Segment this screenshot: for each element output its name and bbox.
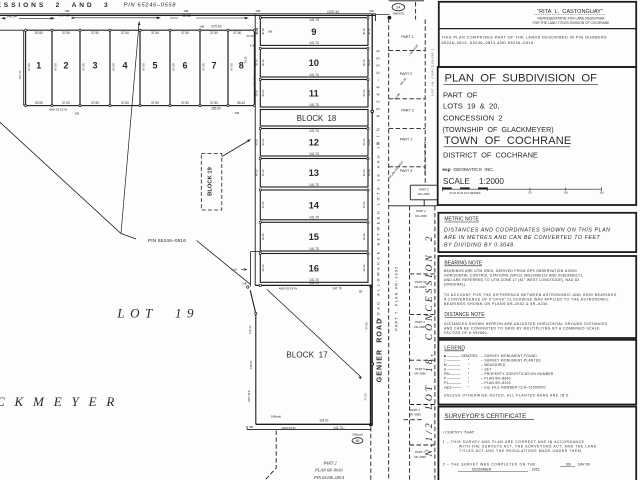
svg-text:BLOCK 19: BLOCK 19 [208, 166, 214, 195]
svg-text:N89°25′15″W: N89°25′15″W [49, 107, 67, 111]
svg-text:37.50: 37.50 [210, 101, 218, 105]
svg-text:″: ″ [468, 381, 470, 385]
svg-text:GENIER ROAD: GENIER ROAD [376, 318, 383, 383]
svg-text:CONCESSION 2: CONCESSION 2 [443, 113, 503, 122]
svg-text:SIB: SIB [249, 425, 254, 429]
svg-text:DAY OF: DAY OF [578, 462, 590, 466]
svg-text:BLOCK 17: BLOCK 17 [286, 351, 328, 360]
svg-text:PART 1: PART 1 [415, 450, 425, 454]
svg-text:9th: 9th [566, 462, 571, 466]
svg-text:PLAN 6R–8643: PLAN 6R–8643 [314, 468, 343, 473]
svg-text:HORIZONTAL CONTROL STATIONS (S: HORIZONTAL CONTROL STATIONS (SPCs) 00819… [444, 274, 584, 278]
svg-text:118.61: 118.61 [319, 418, 329, 422]
svg-text:40.20: 40.20 [367, 169, 371, 176]
svg-text:285.90: 285.90 [211, 107, 221, 111]
svg-text:– PLAN 6R–8643: – PLAN 6R–8643 [481, 377, 511, 381]
svg-text:138.01: 138.01 [249, 360, 253, 370]
svg-text:97.90: 97.90 [141, 63, 145, 71]
svg-text:9: 9 [311, 26, 316, 37]
svg-text:TO ACCOUNT FOR THE DIFFERENCE: TO ACCOUNT FOR THE DIFFERENCE BETWEEN AS… [444, 293, 618, 297]
svg-text:30.50: 30.50 [35, 31, 43, 35]
svg-text:97.90: 97.90 [81, 63, 85, 71]
svg-text:141.70: 141.70 [309, 183, 319, 187]
svg-text:141.70: 141.70 [309, 18, 319, 22]
svg-text:37.50: 37.50 [91, 31, 99, 35]
svg-text:37.50: 37.50 [62, 101, 70, 105]
svg-text:PART 5: PART 5 [415, 367, 425, 371]
svg-text:141.70: 141.70 [309, 73, 319, 77]
svg-text:DENOTES: DENOTES [462, 354, 479, 358]
svg-text:6R–2995: 6R–2995 [414, 325, 426, 329]
svg-text:77.26: 77.26 [364, 393, 368, 401]
svg-text:15: 15 [309, 231, 319, 242]
svg-text:40.20: 40.20 [261, 89, 265, 96]
svg-text:DISTANCES SHOWN HEREON ARE ADJ: DISTANCES SHOWN HEREON ARE ADJUSTED HORI… [444, 322, 608, 326]
svg-text:35.08: 35.08 [255, 27, 259, 34]
svg-text:PART 1, PLAN 6R–2995: PART 1, PLAN 6R–2995 [423, 141, 427, 174]
svg-text:97.90: 97.90 [53, 63, 57, 71]
svg-text:PART 3: PART 3 [400, 169, 412, 173]
svg-text:8: 8 [239, 61, 244, 71]
svg-text:■ ————: ■ ———— [444, 354, 461, 358]
svg-text:6R–3995: 6R–3995 [414, 455, 426, 459]
svg-text:1 – THIS SURVEY AND: 1 – THIS SURVEY AND PLAN ARE CORRECT AND… [443, 440, 585, 444]
svg-text:N07°24′E: N07°24′E [247, 390, 251, 401]
svg-text:LOTS 19 & 20,: LOTS 19 & 20, [443, 102, 500, 111]
svg-text:″: ″ [468, 377, 470, 381]
svg-text:– PLAN 6R–8320: – PLAN 6R–8320 [481, 381, 511, 385]
svg-text:40.20: 40.20 [362, 138, 366, 145]
svg-text:40.20: 40.20 [362, 233, 366, 240]
svg-text:4.80: 4.80 [250, 44, 256, 48]
svg-text:40.20: 40.20 [362, 28, 366, 35]
svg-text:SIB: SIB [242, 281, 246, 285]
svg-text:BEARINGS ARE UTM GRID, DERIVED: BEARINGS ARE UTM GRID, DERIVED FROM GPS … [444, 269, 577, 273]
svg-text:37.50: 37.50 [181, 101, 189, 105]
svg-text:7: 7 [211, 61, 216, 71]
svg-text:2: 2 [63, 61, 68, 71]
svg-text:4: 4 [122, 61, 127, 71]
svg-text:97.90: 97.90 [27, 63, 31, 71]
svg-text:PART 2: PART 2 [400, 72, 412, 76]
svg-text:37.50: 37.50 [151, 101, 159, 105]
svg-text:DISTANCE NOTE: DISTANCE NOTE [444, 312, 485, 318]
svg-text:148.04: 148.04 [6, 14, 16, 18]
svg-text:50 40 30 20 10 0 METRES: 50 40 30 20 10 0 METRES [450, 191, 481, 195]
svg-text:–N89°23′W: –N89°23′W [280, 426, 295, 430]
svg-text:PART OF: PART OF [443, 91, 478, 100]
svg-text:L O T 1 9: L O T 1 9 [116, 306, 194, 321]
svg-text:6R–82: 6R–82 [399, 76, 408, 85]
svg-text:P1————: P1———— [444, 381, 462, 385]
svg-text:37.50: 37.50 [91, 101, 99, 105]
svg-text:– MEASURED: – MEASURED [481, 363, 506, 367]
svg-text:39.30: 39.30 [367, 89, 371, 96]
svg-text:37.50: 37.50 [210, 31, 218, 35]
svg-text:PIN ———: PIN ——— [444, 372, 461, 376]
svg-text:″: ″ [468, 363, 470, 367]
svg-text:BEARING NOTE: BEARING NOTE [444, 260, 482, 266]
svg-text:40.20: 40.20 [362, 264, 366, 271]
svg-text:176.33: 176.33 [248, 325, 252, 335]
svg-text:PART 1: PART 1 [401, 35, 413, 39]
svg-text:40.20: 40.20 [362, 89, 366, 96]
svg-text:ESSIONS 2 AND 3: ESSIONS 2 AND 3 [0, 2, 111, 9]
svg-text:3: 3 [92, 61, 97, 71]
svg-text:– SET: – SET [481, 368, 492, 372]
svg-text:56.42: 56.42 [237, 101, 245, 105]
svg-text:– PROPERTY IDENTIFICATION N: – PROPERTY IDENTIFICATION NUMBER [481, 372, 554, 376]
svg-text:141.70: 141.70 [309, 247, 319, 251]
svg-text:40.20: 40.20 [254, 169, 258, 176]
svg-text:N89°25′15″W: N89°25′15″W [279, 287, 297, 291]
svg-text:REPRESENTATIVE FOR LAND REG: REPRESENTATIVE FOR LAND REGISTRAR [538, 17, 606, 21]
svg-text:SURVEYOR’S CERTIFICATE: SURVEYOR’S CERTIFICATE [444, 413, 526, 420]
svg-text:SIB: SIB [235, 111, 240, 115]
svg-text:″: ″ [468, 386, 470, 390]
svg-text:P ————: P ———— [444, 377, 461, 381]
svg-text:SCALE 1:2000: SCALE 1:2000 [443, 177, 504, 186]
svg-text:exp1———: exp1——— [444, 386, 462, 390]
svg-text:47.08: 47.08 [364, 322, 368, 330]
svg-text:, 2015.: , 2015. [530, 468, 540, 472]
svg-text:″: ″ [468, 372, 470, 376]
svg-text:PART 4: PART 4 [415, 320, 425, 324]
svg-text:39.30: 39.30 [254, 59, 258, 66]
svg-text:PART 3: PART 3 [415, 280, 425, 284]
svg-text:SIB: SIB [369, 9, 374, 13]
svg-text:PLAN OF SUBDIVISION OF: PLAN OF SUBDIVISION OF [445, 73, 598, 85]
svg-text:LEGEND: LEGEND [444, 345, 465, 351]
svg-text:39.30: 39.30 [254, 89, 258, 96]
svg-text:318.60: 318.60 [252, 77, 256, 86]
svg-text:30.40: 30.40 [247, 34, 254, 38]
svg-text:C K M E Y E R: C K M E Y E R [0, 394, 118, 409]
svg-text:SIB: SIB [65, 9, 70, 13]
svg-text:FACTOR OF 0.999560.: FACTOR OF 0.999560. [444, 331, 488, 335]
svg-text:107.27: 107.27 [18, 70, 22, 80]
svg-text:N.1/2 LOT 18, CONCESSION 2: N.1/2 LOT 18, CONCESSION 2 [424, 234, 435, 458]
svg-text:2 – THE SURVEY WAS C: 2 – THE SURVEY WAS COMPLETED ON THE [443, 462, 536, 466]
svg-text:TOWN OF COCHRANE: TOWN OF COCHRANE [444, 135, 571, 147]
svg-text:– exp FILE NUMBER CCH–0150: – exp FILE NUMBER CCH–01505000 [481, 386, 546, 390]
svg-text:24: 24 [396, 6, 400, 10]
svg-text:6R–3995: 6R–3995 [409, 413, 421, 417]
svg-text:METRIC NOTE: METRIC NOTE [444, 217, 479, 223]
svg-text:BLOCK 18: BLOCK 18 [297, 114, 336, 123]
svg-text:SIB(wit): SIB(wit) [271, 414, 282, 418]
svg-text:92.32: 92.32 [182, 14, 190, 18]
svg-text:(ORIGINAL).: (ORIGINAL). [444, 283, 467, 287]
svg-text:40.20: 40.20 [261, 28, 265, 35]
svg-text:FOR THE LAND TITLES DIVISI: FOR THE LAND TITLES DIVISION OF COCHRANE [533, 21, 611, 25]
svg-text:97.90: 97.90 [111, 63, 115, 71]
svg-text:141.70: 141.70 [309, 281, 319, 285]
svg-text:TITLES ACT AND THE REGULAT: TITLES ACT AND THE REGULATIONS MADE UNDE… [459, 449, 583, 453]
svg-text:SIB: SIB [200, 24, 205, 28]
svg-text:□ ————: □ ———— [444, 359, 461, 363]
svg-text:6.00: 6.00 [231, 268, 237, 272]
svg-text:30.10: 30.10 [367, 28, 371, 35]
svg-text:AND CAN BE CONVERTED TO GRID B: AND CAN BE CONVERTED TO GRID BY MULTIPLY… [444, 326, 600, 330]
svg-text:675.62: 675.62 [211, 24, 221, 28]
svg-text:ROAD ALLOWANCE BETWEEN LOTS 18: ROAD ALLOWANCE BETWEEN LOTS 18 AND 19 [376, 139, 380, 320]
svg-text:PIN 65246–0558: PIN 65246–0558 [124, 2, 177, 8]
svg-text:SIB: SIB [184, 9, 189, 13]
svg-text:97.90: 97.90 [229, 63, 233, 71]
svg-text:BEARINGS SHOWN ON PLANS 6R–255: BEARINGS SHOWN ON PLANS 6R–2552 & 6R–823… [444, 302, 549, 306]
svg-text:141.70–: 141.70– [333, 426, 345, 430]
svg-text:36.30: 36.30 [244, 56, 248, 63]
svg-text:141.70: 141.70 [309, 129, 319, 133]
svg-text:30.50: 30.50 [35, 101, 43, 105]
svg-text:exp GEOMATICS INC.: exp GEOMATICS INC. [442, 167, 494, 173]
svg-text:13: 13 [309, 167, 319, 178]
svg-text:THIS PLAN COMPRISES PART O: THIS PLAN COMPRISES PART OF THE LANDS DE… [442, 36, 608, 40]
svg-text:DECEMBER: DECEMBER [472, 468, 492, 472]
svg-text:PLAN: PLAN [393, 92, 401, 100]
svg-text:12: 12 [309, 137, 319, 148]
svg-text:1037.44: 1037.44 [327, 10, 339, 14]
svg-text:BY DIVIDING BY 0.3048.: BY DIVIDING BY 0.3048. [444, 242, 516, 248]
svg-text:6R–2995: 6R–2995 [414, 372, 426, 376]
svg-text:66: 66 [356, 439, 360, 443]
svg-text:37.50: 37.50 [233, 31, 241, 35]
svg-text:97.90: 97.90 [201, 63, 205, 71]
svg-text:37.50: 37.50 [181, 31, 189, 35]
svg-text:39.30: 39.30 [367, 59, 371, 66]
svg-text:14: 14 [309, 199, 320, 210]
svg-text:SIB: SIB [268, 30, 273, 34]
svg-text:40.20: 40.20 [261, 59, 265, 66]
svg-text:PART 7, PLAN 6R–3995: PART 7, PLAN 6R–3995 [394, 265, 398, 330]
svg-text:SIB(WIT): SIB(WIT) [393, 11, 405, 15]
svg-text:PART 3: PART 3 [410, 408, 420, 412]
svg-text:UNLESS OTHERWISE NOTED, ALL: UNLESS OTHERWISE NOTED, ALL PLANTED BARS… [444, 394, 570, 398]
svg-text:40.20: 40.20 [362, 59, 366, 66]
svg-text:PART 2: PART 2 [419, 188, 429, 192]
svg-text:SIB: SIB [256, 9, 261, 13]
svg-text:37.50: 37.50 [121, 101, 129, 105]
svg-text:– SURVEY MONUMENT FOUND: – SURVEY MONUMENT FOUND [481, 354, 537, 358]
svg-text:40.20: 40.20 [261, 169, 265, 176]
svg-text:6R–2995: 6R–2995 [415, 214, 427, 218]
svg-text:A CONVERGENCE OF 0°04′00″ CLOC: A CONVERGENCE OF 0°04′00″ CLOCKWISE WAS … [444, 297, 609, 301]
svg-text:37.50: 37.50 [62, 31, 70, 35]
svg-text:10: 10 [309, 57, 319, 68]
svg-text:16: 16 [309, 262, 319, 273]
svg-text:147.70: 147.70 [332, 287, 342, 291]
svg-text:AND ARE REFERRED TO UTM ZONE 1: AND ARE REFERRED TO UTM ZONE 17 (81° WES… [444, 278, 579, 282]
svg-text:5: 5 [152, 61, 157, 71]
svg-text:PIN 65246–0816: PIN 65246–0816 [148, 238, 186, 244]
svg-text:141.70: 141.70 [309, 216, 319, 220]
svg-text:″: ″ [468, 368, 470, 372]
svg-text:I CERTIFY THAT:: I CERTIFY THAT: [443, 431, 475, 435]
svg-text:147.99: 147.99 [59, 14, 69, 18]
svg-text:– SURVEY MONUMENT PLANTED: – SURVEY MONUMENT PLANTED [481, 359, 541, 363]
svg-text:PIN 65246–0814: PIN 65246–0814 [313, 475, 345, 480]
svg-text:141.70: 141.70 [309, 41, 319, 45]
svg-text:40.20: 40.20 [261, 138, 265, 145]
svg-text:40.20: 40.20 [261, 201, 265, 208]
svg-text:M ————: M ———— [444, 363, 462, 367]
svg-text:65246–0812, 65246–0813 AND: 65246–0812, 65246–0813 AND 65246–0816. [442, 41, 536, 45]
svg-text:40.20: 40.20 [254, 138, 258, 145]
svg-text:SIB(wit): SIB(wit) [352, 432, 363, 436]
svg-text:6R–2995: 6R–2995 [418, 192, 430, 196]
svg-text:100: 100 [564, 191, 569, 195]
svg-text:50: 50 [529, 191, 532, 195]
svg-text:“RITA L. CASTONGUAY”: “RITA L. CASTONGUAY” [537, 9, 603, 15]
svg-text:(TOWNSHIP OF GLACKMEYER): (TOWNSHIP OF GLACKMEYER) [442, 125, 553, 134]
svg-text:ARE IN METRES AND CAN BE: ARE IN METRES AND CAN BE CONVERTED TO FE… [443, 235, 601, 241]
svg-text:6R–2995: 6R–2995 [414, 285, 426, 289]
svg-text:40.20: 40.20 [261, 264, 265, 271]
svg-text:40.20: 40.20 [362, 169, 366, 176]
svg-text:PART 1: PART 1 [400, 137, 412, 141]
svg-text:PART 2: PART 2 [322, 460, 337, 465]
svg-text:97.90: 97.90 [171, 63, 175, 71]
svg-text:40.20: 40.20 [362, 201, 366, 208]
svg-text:DISTANCES AND COORDINATES S: DISTANCES AND COORDINATES SHOWN ON THIS … [444, 228, 611, 234]
svg-text:37.50: 37.50 [121, 31, 129, 35]
svg-text:″: ″ [468, 359, 470, 363]
svg-text:141.70: 141.70 [309, 103, 319, 107]
svg-text:WITH THE SURVEYS ACT, THE: WITH THE SURVEYS ACT, THE SURVEYORS ACT,… [459, 444, 597, 448]
svg-text:150: 150 [599, 191, 604, 195]
svg-text:DISTRICT OF COCHRANE: DISTRICT OF COCHRANE [443, 151, 538, 160]
svg-text:40.20: 40.20 [367, 138, 371, 145]
svg-text:S ————: S ———— [444, 368, 461, 372]
svg-text:11: 11 [309, 88, 319, 99]
svg-text:SB: SB [359, 290, 363, 294]
svg-text:SIB: SIB [75, 112, 80, 116]
svg-text:40.20: 40.20 [261, 233, 265, 240]
svg-text:1: 1 [36, 61, 41, 71]
svg-text:PART 2: PART 2 [416, 209, 426, 213]
svg-text:37.50: 37.50 [151, 31, 159, 35]
svg-text:PART 3: PART 3 [401, 108, 413, 112]
svg-text:6: 6 [182, 61, 187, 71]
svg-text:141.70: 141.70 [309, 152, 319, 156]
svg-text:PIN 65246–0556: PIN 65246–0556 [375, 45, 380, 145]
svg-text:LOT 18, CONCESSION 2: LOT 18, CONCESSION 2 [431, 48, 436, 97]
